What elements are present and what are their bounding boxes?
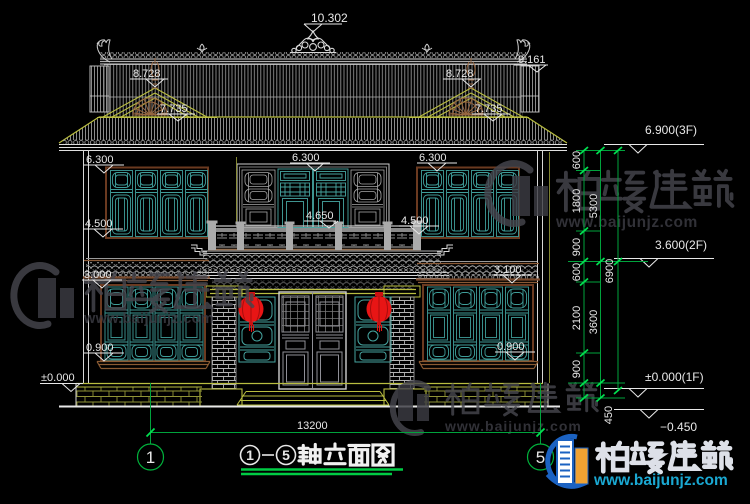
- svg-text:0.900: 0.900: [86, 342, 114, 354]
- svg-text:3.600(2F): 3.600(2F): [655, 238, 707, 252]
- svg-text:www.baijunjz.com: www.baijunjz.com: [444, 418, 582, 434]
- svg-text:3600: 3600: [588, 310, 600, 334]
- svg-text:9.161: 9.161: [518, 54, 546, 66]
- svg-text:6900: 6900: [604, 259, 616, 283]
- svg-text:6.300: 6.300: [292, 152, 320, 164]
- svg-text:8.728: 8.728: [133, 68, 161, 80]
- svg-text:7.735: 7.735: [160, 103, 188, 115]
- svg-text:6.300: 6.300: [419, 152, 447, 164]
- svg-text:13200: 13200: [297, 420, 328, 432]
- svg-text:4.500: 4.500: [85, 218, 113, 230]
- svg-text:900: 900: [571, 238, 583, 256]
- svg-text:10.302: 10.302: [311, 11, 348, 25]
- svg-text:2100: 2100: [571, 306, 583, 330]
- svg-text:450: 450: [603, 406, 615, 424]
- svg-text:3.100: 3.100: [494, 264, 522, 276]
- svg-text:5300: 5300: [588, 194, 600, 218]
- svg-text:1: 1: [146, 448, 155, 467]
- svg-text:3.000: 3.000: [84, 269, 112, 281]
- svg-text:www.baijunjz.com: www.baijunjz.com: [555, 214, 698, 231]
- svg-text:5: 5: [282, 447, 290, 463]
- svg-text:−0.450: −0.450: [660, 420, 697, 434]
- svg-text:1800: 1800: [571, 189, 583, 213]
- svg-text:1: 1: [246, 447, 254, 463]
- svg-text:±0.000(1F): ±0.000(1F): [645, 370, 704, 384]
- svg-text:www.baijunjz.com: www.baijunjz.com: [83, 311, 214, 327]
- svg-text:900: 900: [571, 360, 583, 378]
- svg-text:600: 600: [571, 151, 583, 169]
- svg-text:±0.000: ±0.000: [41, 372, 75, 384]
- svg-text:0.900: 0.900: [497, 341, 525, 353]
- svg-text:8.728: 8.728: [446, 68, 474, 80]
- svg-text:4.500: 4.500: [401, 215, 429, 227]
- svg-text:5: 5: [536, 448, 545, 467]
- svg-text:6.300: 6.300: [86, 154, 114, 166]
- svg-text:7.735: 7.735: [475, 103, 503, 115]
- svg-text:600: 600: [571, 263, 583, 281]
- svg-text:www.baijunjz.com: www.baijunjz.com: [593, 472, 728, 489]
- svg-text:6.900(3F): 6.900(3F): [645, 123, 697, 137]
- svg-text:4.650: 4.650: [306, 210, 334, 222]
